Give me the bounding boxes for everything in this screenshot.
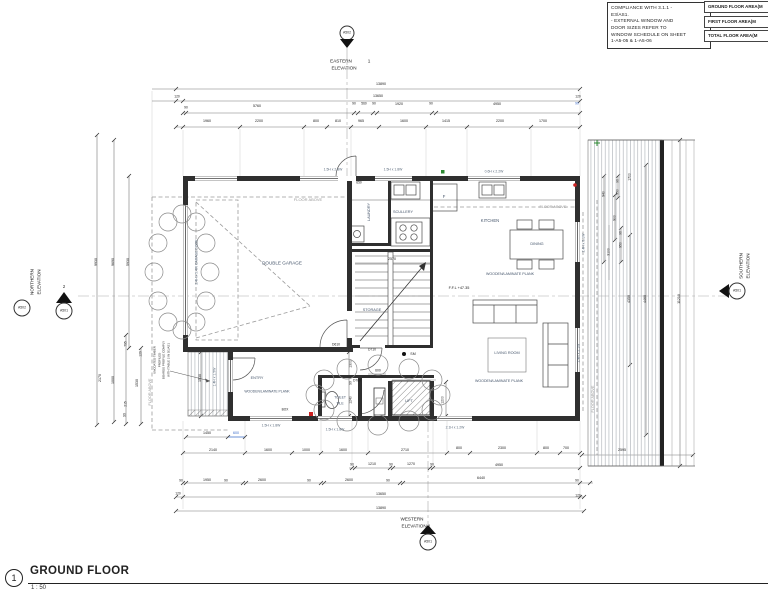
deck-right — [588, 140, 695, 466]
toilet-lift — [319, 381, 430, 415]
laundry-tub — [350, 226, 364, 242]
plan-accents — [309, 140, 600, 416]
cooktop — [396, 222, 422, 243]
staircase — [355, 252, 430, 346]
detail-number-circle: 1 — [5, 569, 23, 587]
rug — [488, 338, 526, 372]
title-block: 1 GROUND FLOOR 1 : 50 — [0, 563, 768, 603]
area-row-first: FIRST FLOOR AREA(M — [704, 16, 768, 28]
kitchen-sink — [479, 182, 506, 198]
floor-plan-sheet: A502EASTERN1ELEVATIONNORTHERNELEVATIONA5… — [0, 0, 768, 610]
toilet-pan — [326, 392, 339, 409]
living-furniture — [473, 300, 568, 387]
elevation-marker-west — [420, 534, 436, 550]
red-marker — [309, 412, 313, 416]
sofa — [473, 300, 537, 323]
elevation-marker-west-arrow — [420, 525, 436, 534]
drawing-scale: 1 : 50 — [31, 585, 46, 591]
door-leaf — [374, 388, 385, 415]
elevation-marker-east-arrow — [340, 39, 354, 48]
page-title: GROUND FLOOR — [30, 565, 129, 577]
dining-set — [510, 220, 563, 269]
deck-left — [188, 352, 228, 416]
section-marker-north — [56, 303, 72, 319]
elevation-marker-south — [729, 283, 745, 299]
scullery-sink — [391, 182, 420, 199]
green-marker — [441, 170, 445, 174]
area-row-ground: GROUND FLOOR AREA(M — [704, 1, 768, 13]
title-underline — [28, 583, 768, 584]
windows — [183, 176, 580, 421]
revision-cloud-garage-door — [145, 205, 219, 339]
dining-table — [510, 230, 563, 259]
section-marker-north-arrow — [56, 292, 72, 303]
red-dot-marker — [573, 183, 577, 187]
walls — [183, 176, 580, 421]
area-row-total: TOTAL FLOOR AREA(M — [704, 30, 768, 42]
floor-plan-drawing — [0, 0, 768, 610]
elevation-marker-north — [14, 300, 30, 316]
compliance-note: COMPLIANCE WITH 3.1.1 - E3/AS1. - EXTERN… — [607, 2, 711, 49]
elevation-marker-east — [340, 26, 354, 40]
sofa-2 — [543, 323, 568, 387]
smoke-alarm-dot — [402, 352, 406, 356]
floor-area-table: GROUND FLOOR AREA(M FIRST FLOOR AREA(M T… — [704, 1, 768, 45]
